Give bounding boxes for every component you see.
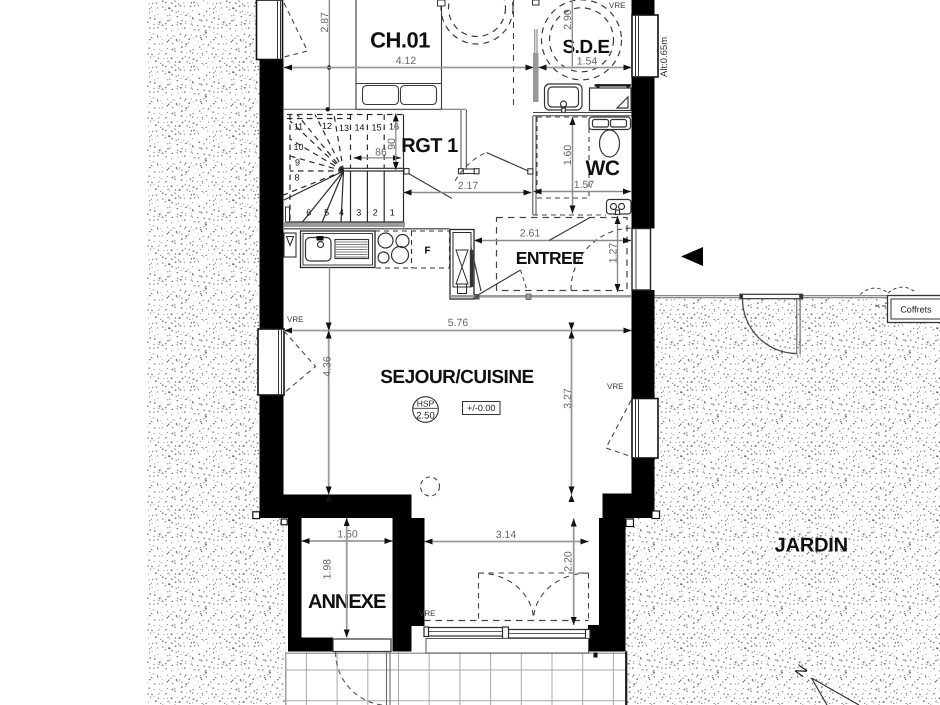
svg-text:5.76: 5.76: [448, 317, 469, 329]
svg-text:14: 14: [354, 123, 364, 133]
svg-text:13: 13: [339, 123, 349, 133]
svg-text:2.50: 2.50: [416, 411, 435, 422]
svg-text:4: 4: [339, 208, 344, 218]
svg-text:SEJOUR/CUISINE: SEJOUR/CUISINE: [380, 367, 533, 388]
svg-text:1.60: 1.60: [562, 145, 574, 166]
svg-text:16: 16: [389, 122, 399, 132]
svg-text:RGT 1: RGT 1: [401, 135, 458, 157]
svg-text:3: 3: [356, 208, 361, 218]
svg-text:1.57: 1.57: [574, 179, 595, 191]
svg-text:15: 15: [371, 123, 381, 133]
svg-text:3.14: 3.14: [496, 529, 517, 541]
svg-text:F: F: [425, 246, 431, 257]
svg-text:12: 12: [322, 121, 332, 131]
svg-text:2.90: 2.90: [562, 9, 574, 30]
svg-text:1.27: 1.27: [608, 243, 620, 264]
svg-text:VRE: VRE: [287, 315, 303, 324]
svg-text:2: 2: [373, 208, 378, 218]
svg-text:2.87: 2.87: [319, 12, 331, 33]
svg-text:+/-0.00: +/-0.00: [467, 403, 495, 413]
svg-text:JARDIN: JARDIN: [775, 535, 848, 557]
svg-text:HSP: HSP: [417, 399, 435, 409]
svg-text:9: 9: [295, 158, 300, 168]
svg-text:10: 10: [293, 142, 303, 152]
svg-text:Alt:0.65m: Alt:0.65m: [659, 37, 670, 77]
svg-text:11: 11: [294, 122, 303, 132]
svg-text:4.36: 4.36: [322, 356, 334, 377]
svg-text:VRE: VRE: [607, 382, 623, 391]
svg-text:ENTREE: ENTREE: [516, 248, 583, 268]
svg-text:VRE: VRE: [609, 1, 625, 10]
svg-text:2.20: 2.20: [563, 551, 575, 572]
svg-text:2.61: 2.61: [520, 228, 541, 240]
svg-text:4.12: 4.12: [396, 55, 417, 67]
svg-text:2.17: 2.17: [458, 180, 479, 192]
svg-text:1: 1: [390, 208, 395, 218]
svg-text:CH.01: CH.01: [370, 28, 430, 53]
svg-text:1.54: 1.54: [577, 56, 598, 68]
svg-text:1.98: 1.98: [322, 559, 334, 580]
svg-text:WC: WC: [586, 157, 620, 180]
svg-text:3.27: 3.27: [562, 388, 574, 409]
svg-text:6: 6: [306, 208, 311, 218]
svg-text:VRE: VRE: [419, 609, 435, 618]
svg-text:5: 5: [324, 208, 329, 218]
svg-text:8: 8: [294, 173, 299, 183]
svg-text:90: 90: [386, 138, 398, 150]
svg-text:Coffrets: Coffrets: [900, 305, 932, 315]
